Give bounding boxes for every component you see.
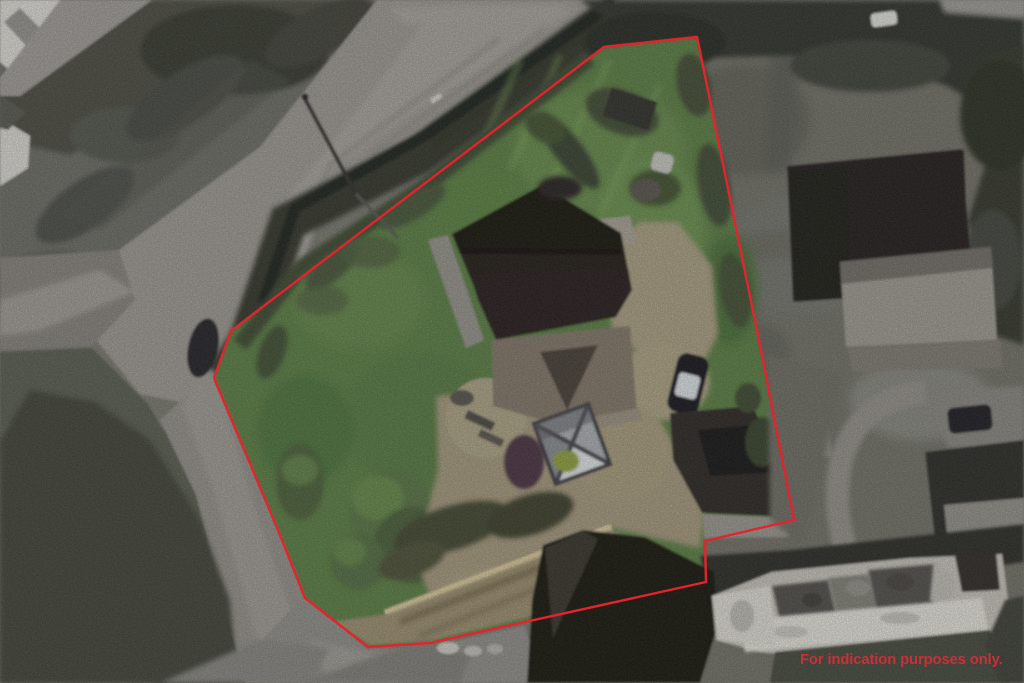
svg-text:For indication purposes only.: For indication purposes only.	[800, 652, 1003, 668]
